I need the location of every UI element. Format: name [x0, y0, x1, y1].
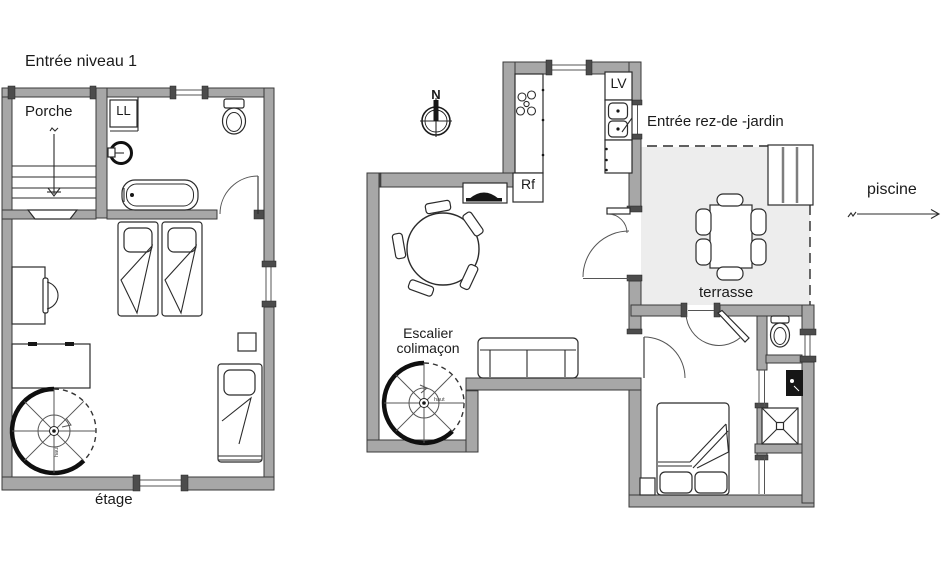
pool-arrow — [848, 210, 939, 219]
stair-up-label-level1: haut — [54, 446, 60, 457]
level1-window-right — [262, 261, 276, 307]
toilet — [223, 99, 246, 134]
shower — [762, 408, 798, 444]
level1-window-bottom — [133, 475, 188, 491]
spiral-stair-label-line2: colimaçon — [384, 341, 472, 356]
nightstand-garden — [640, 478, 655, 495]
pool-label: piscine — [867, 181, 917, 199]
floorplan-canvas: haut — [0, 0, 946, 568]
compass-north-label: N — [427, 88, 445, 102]
stove — [463, 183, 507, 203]
spiral-staircase-level1: haut — [12, 389, 96, 473]
porch-label: Porche — [25, 104, 73, 121]
bathtub — [122, 180, 198, 210]
level1-window-top — [170, 86, 208, 99]
single-bed — [218, 364, 262, 462]
wc-window-right — [800, 329, 816, 362]
wc-toilet — [771, 316, 790, 347]
hall-door — [644, 337, 685, 378]
level1-title: Entrée niveau 1 — [25, 53, 137, 71]
washer-label: LL — [110, 104, 137, 118]
level1-plan: haut — [2, 86, 276, 491]
stair-up-label-garden: haut — [434, 397, 445, 403]
desk — [12, 267, 45, 324]
spiral-staircase-garden: haut — [384, 363, 464, 443]
bathroom-door — [220, 176, 258, 214]
terrace-double-door — [583, 208, 630, 279]
spiral-stair-label-line1: Escalier — [384, 326, 472, 341]
kitchen-sink — [605, 100, 632, 140]
terrace-storage — [768, 145, 813, 205]
terrace-label: terrasse — [699, 285, 753, 302]
garden-title: Entrée rez-de -jardin — [647, 114, 784, 131]
porch-entry-arrow — [47, 128, 61, 196]
double-bed — [657, 403, 729, 495]
floorplan-graphics: haut — [0, 0, 946, 568]
washbasin — [786, 370, 803, 396]
side-table — [12, 342, 90, 388]
fridge-label: Rf — [513, 177, 543, 192]
twin-bed-1 — [118, 222, 158, 316]
dishwasher-label: LV — [605, 76, 632, 91]
spiral-stair-label: Escalier colimaçon — [384, 326, 472, 357]
kitchen-window-top — [546, 60, 592, 75]
entry-door — [28, 210, 77, 219]
kitchen-counter-right — [605, 140, 632, 173]
desk-chair — [43, 278, 58, 313]
bathroom-sink — [108, 143, 132, 164]
twin-bed-2 — [162, 222, 202, 316]
sofa — [478, 338, 578, 378]
kitchen-counter-left — [515, 74, 544, 173]
compass — [420, 98, 452, 137]
nightstand-level1 — [238, 333, 256, 351]
floor-label: étage — [95, 492, 133, 509]
